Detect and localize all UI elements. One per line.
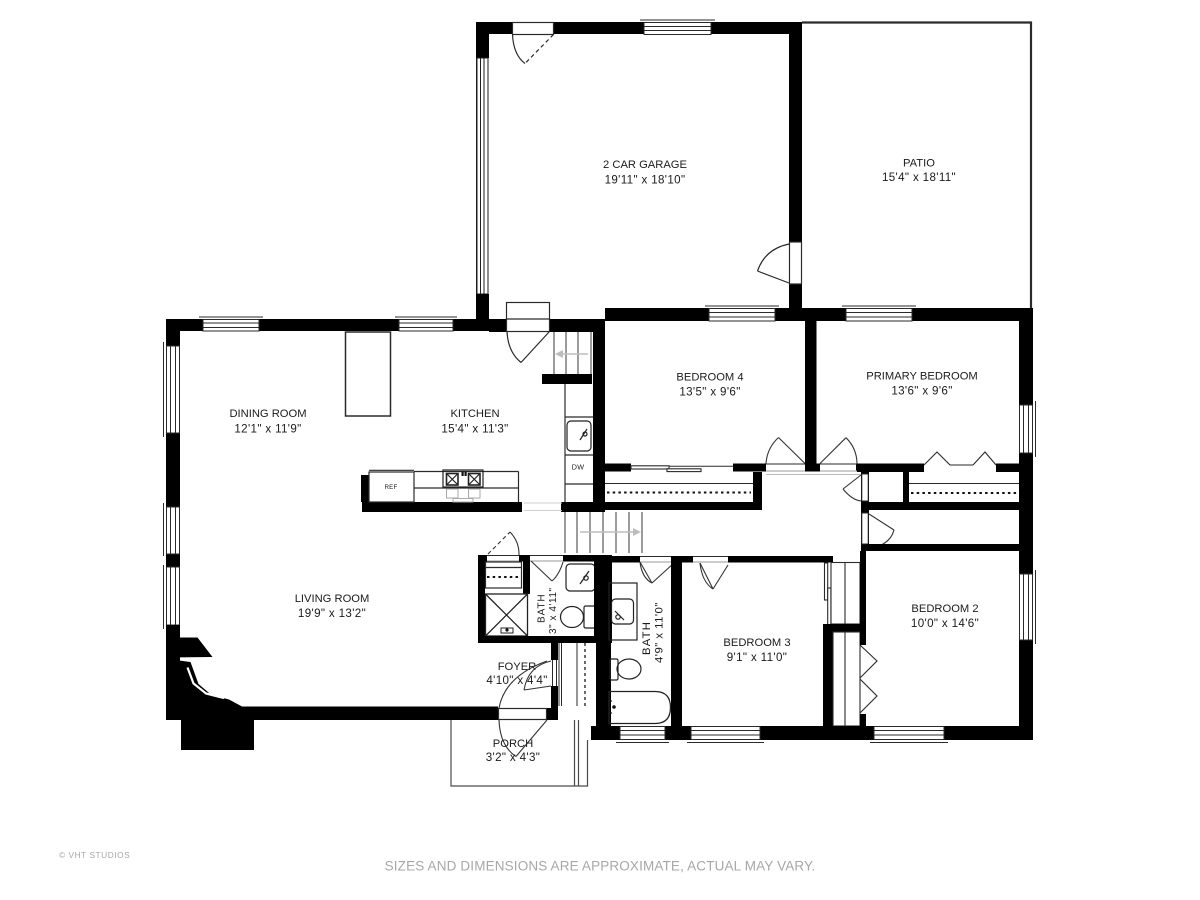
svg-text:PATIO: PATIO xyxy=(903,158,935,170)
svg-text:PORCH: PORCH xyxy=(493,738,533,750)
svg-text:DW: DW xyxy=(572,463,585,472)
svg-text:4'9" x 11'0": 4'9" x 11'0" xyxy=(654,602,666,663)
svg-text:LIVING ROOM: LIVING ROOM xyxy=(295,593,370,605)
svg-text:PRIMARY BEDROOM: PRIMARY BEDROOM xyxy=(866,371,977,383)
svg-text:4'10" x 4'4": 4'10" x 4'4" xyxy=(486,674,547,687)
svg-text:19'11" x 18'10": 19'11" x 18'10" xyxy=(605,174,686,187)
svg-text:13'6" x 9'6": 13'6" x 9'6" xyxy=(891,385,952,398)
svg-text:13'5" x 9'6": 13'5" x 9'6" xyxy=(679,386,740,399)
svg-text:15'4" x 11'3": 15'4" x 11'3" xyxy=(441,423,508,436)
svg-text:DINING ROOM: DINING ROOM xyxy=(229,408,306,420)
svg-text:3" x 4'11": 3" x 4'11" xyxy=(548,587,559,634)
svg-text:FOYER: FOYER xyxy=(498,661,537,673)
svg-text:BATH: BATH xyxy=(537,593,548,623)
svg-text:15'4" x 18'11": 15'4" x 18'11" xyxy=(882,171,956,184)
svg-text:© VHT STUDIOS: © VHT STUDIOS xyxy=(59,850,130,860)
svg-text:10'0" x 14'6": 10'0" x 14'6" xyxy=(911,617,979,630)
svg-text:2 CAR GARAGE: 2 CAR GARAGE xyxy=(603,159,687,171)
svg-text:BEDROOM 2: BEDROOM 2 xyxy=(911,603,978,615)
svg-text:BATH: BATH xyxy=(641,621,653,655)
svg-text:3'2" x 4'3": 3'2" x 4'3" xyxy=(486,751,541,764)
svg-text:BEDROOM 3: BEDROOM 3 xyxy=(723,637,790,649)
svg-text:BEDROOM 4: BEDROOM 4 xyxy=(676,372,743,384)
svg-text:REF: REF xyxy=(385,484,398,491)
svg-text:9'1" x 11'0": 9'1" x 11'0" xyxy=(727,651,787,664)
svg-text:12'1" x 11'9": 12'1" x 11'9" xyxy=(234,423,301,436)
svg-text:KITCHEN: KITCHEN xyxy=(450,408,499,420)
svg-text:SIZES AND DIMENSIONS ARE APPRO: SIZES AND DIMENSIONS ARE APPROXIMATE, AC… xyxy=(385,859,816,874)
svg-text:19'9" x 13'2": 19'9" x 13'2" xyxy=(298,607,366,620)
